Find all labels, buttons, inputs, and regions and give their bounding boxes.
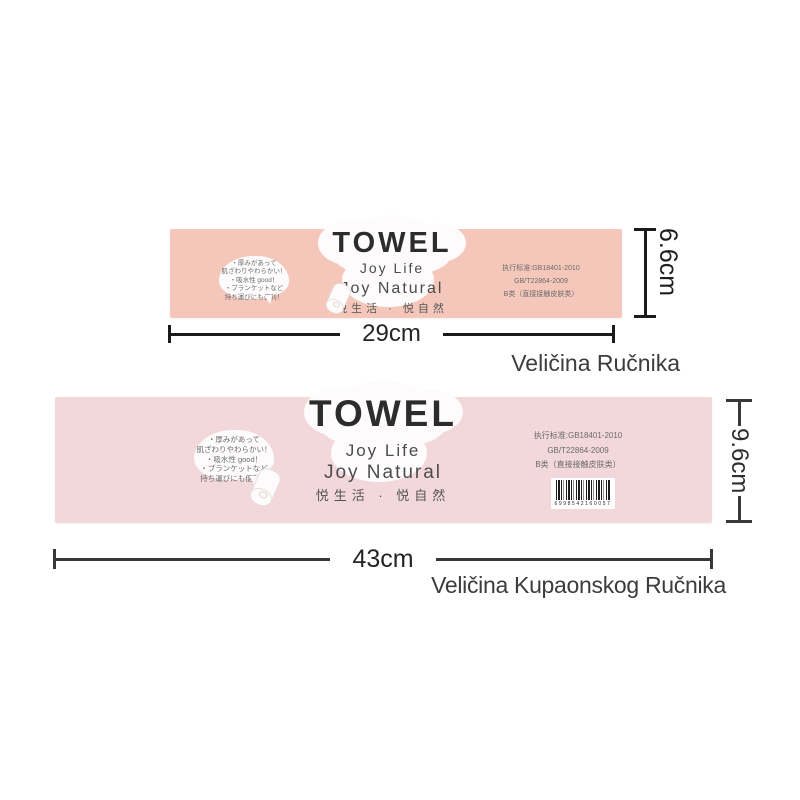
bubble-line: ・厚みがあって (194, 435, 274, 445)
bubble-line: ・吸水性 good！ (194, 455, 274, 465)
dimension-cap (726, 520, 752, 523)
dimension-segment (644, 231, 647, 315)
height-dimension-line: 9.6cm (724, 399, 754, 523)
dimension-segment (738, 402, 741, 426)
dimension-cap (710, 549, 713, 569)
rolled-towel-icon (243, 467, 287, 509)
width-dimension-line: 43cm (53, 549, 713, 569)
standard-line: GB/T22864-2009 (518, 444, 638, 459)
width-value: 43cm (330, 545, 435, 574)
dimension-segment (738, 496, 741, 520)
bubble-line: 持ち運びにも便利！ (219, 294, 289, 302)
standard-line: B类（直接接触皮肤类） (518, 458, 638, 473)
dimension-segment (56, 558, 330, 561)
hand-towel-caption: Veličina Ručnika (470, 350, 680, 377)
standard-line: 执行标准:GB18401-2010 (518, 429, 638, 444)
rolled-towel-icon (320, 282, 356, 316)
bubble-line: 肌ざわりやわらかい！ (219, 268, 289, 276)
bath-towel-caption: Veličina Kupaonskog Ručnika (428, 572, 726, 599)
width-value: 29cm (340, 320, 443, 348)
standards-block: 执行标准:GB18401-2010 GB/T22864-2009 B类（直接接触… (518, 429, 638, 473)
standard-line: 执行标准:GB18401-2010 (486, 262, 596, 275)
brand-tagline-chinese: 悦生活 · 悦自然 (283, 485, 483, 504)
dimension-segment (443, 333, 612, 336)
standards-block: 执行标准:GB18401-2010 GB/T22864-2009 B类（直接接触… (486, 262, 596, 301)
dimension-segment (436, 558, 710, 561)
height-value: 6.6cm (653, 228, 682, 318)
bubble-line: 肌ざわりやわらかい！ (194, 445, 274, 455)
standard-line: GB/T22864-2009 (486, 275, 596, 288)
dimension-segment (171, 333, 340, 336)
speech-bubble: ・厚みがあって 肌ざわりやわらかい！ ・吸水性 good！ ・ブランケットなど … (219, 256, 289, 299)
barcode-digits: 6998542160057 (555, 501, 612, 507)
barcode: 6998542160057 (551, 478, 615, 509)
brand-tagline-1: Joy Life (308, 260, 476, 276)
barcode-bars (556, 480, 610, 500)
standard-line: B类（直接接触皮肤类） (486, 288, 596, 301)
dimension-cap (612, 325, 615, 343)
brand-tagline-1: Joy Life (293, 441, 473, 461)
bubble-line: ・ブランケットなど (219, 285, 289, 293)
brand-tagline-2: Joy Natural (293, 462, 473, 484)
height-value: 9.6cm (725, 428, 753, 493)
brand-title: TOWEL (293, 393, 473, 435)
brand-title: TOWEL (308, 227, 476, 260)
width-dimension-line: 29cm (168, 325, 615, 343)
